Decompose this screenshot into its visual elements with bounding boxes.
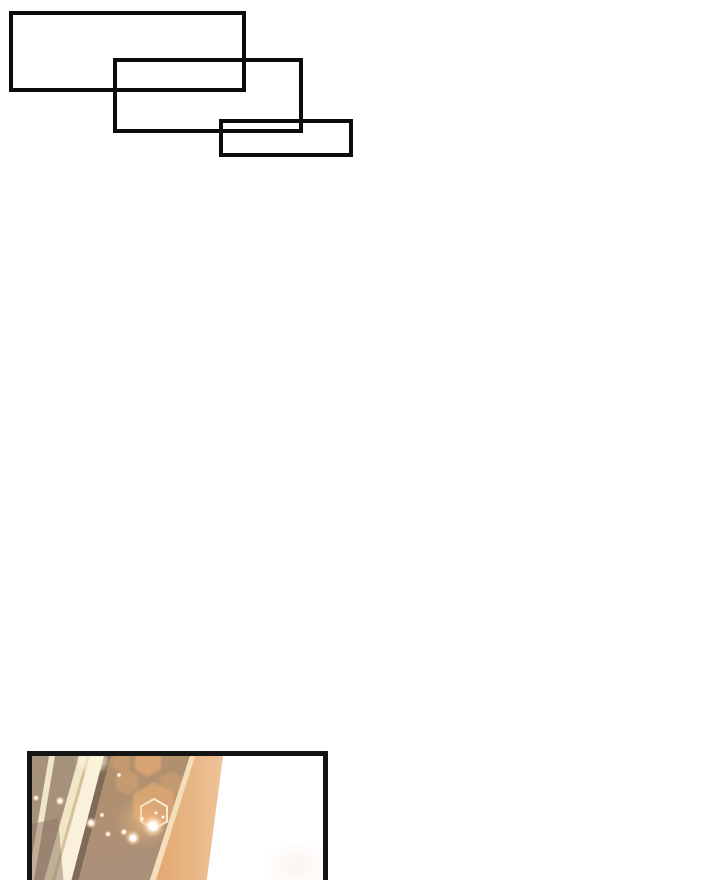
sparkle (55, 796, 65, 806)
sparkle (33, 795, 40, 802)
panel-artwork (32, 756, 323, 880)
comic-panel (27, 751, 328, 880)
sparkle (116, 772, 122, 778)
sparkle (161, 815, 166, 820)
sparkle (99, 812, 105, 818)
comic-page (0, 0, 720, 864)
sparkle (139, 816, 145, 822)
sparkle (83, 787, 88, 792)
page: { "page": { "width": 720, "height": 864,… (0, 0, 720, 864)
sparkle (154, 811, 159, 816)
caption-box-3 (219, 119, 353, 157)
sparkle (105, 831, 112, 838)
sparkle (85, 817, 97, 829)
sparkle (120, 828, 128, 836)
